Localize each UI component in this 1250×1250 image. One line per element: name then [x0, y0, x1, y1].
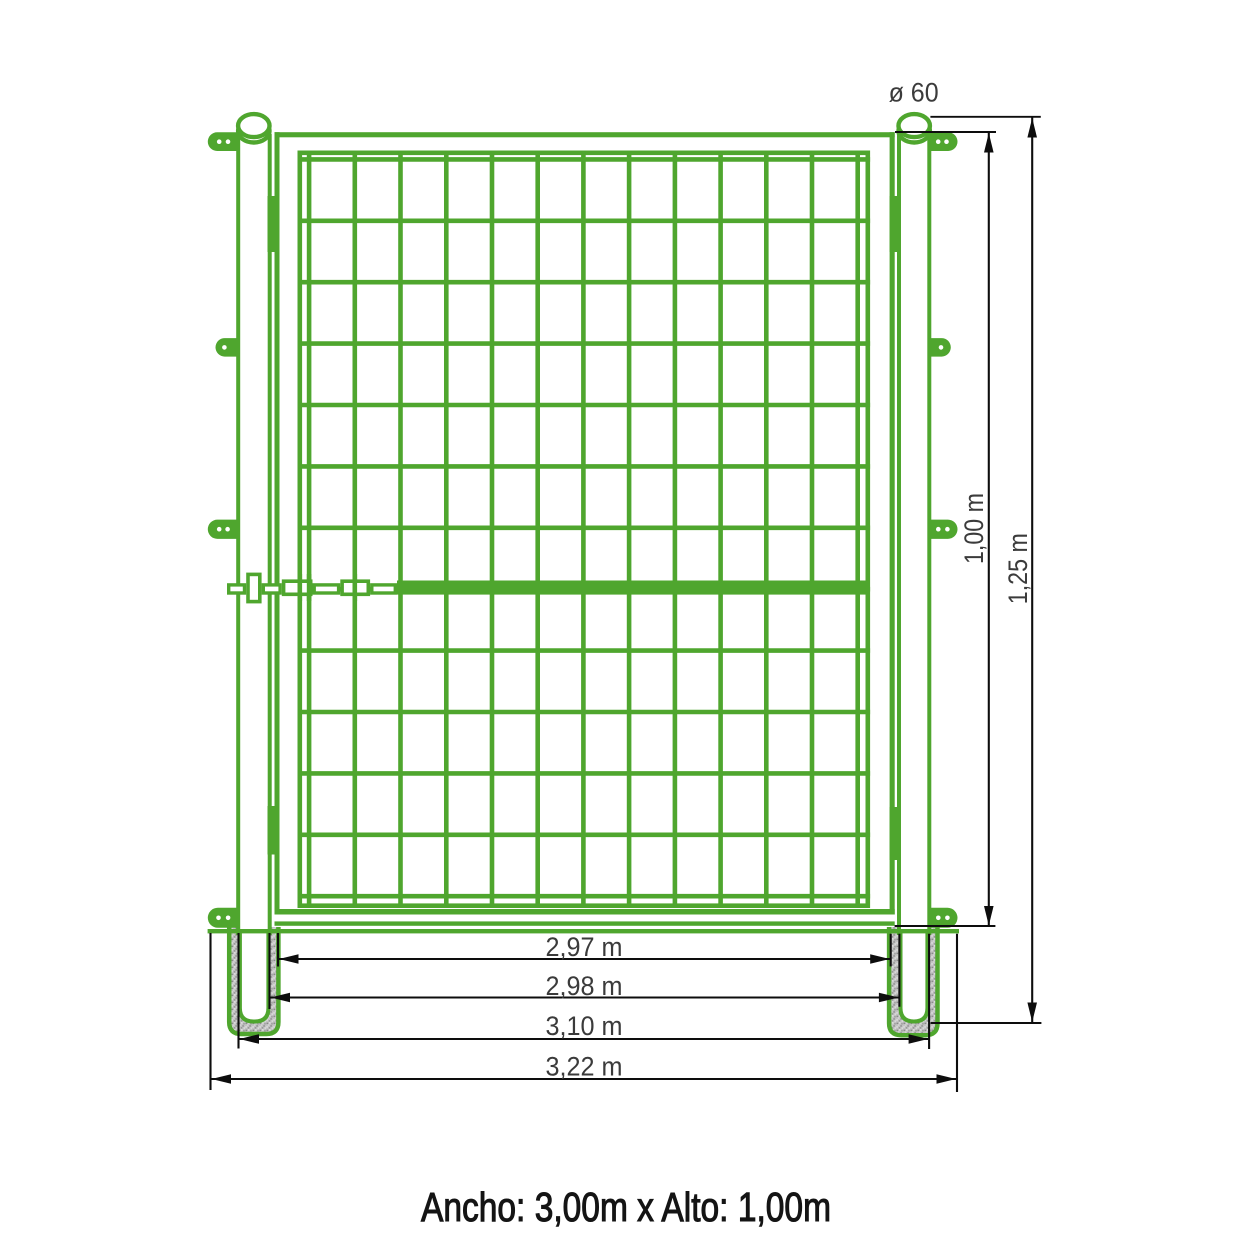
svg-text:3,10 m: 3,10 m — [546, 1011, 623, 1041]
svg-text:1,00 m: 1,00 m — [959, 493, 989, 564]
svg-text:Ancho: 3,00m x Alto: 1,00m: Ancho: 3,00m x Alto: 1,00m — [421, 1184, 831, 1230]
svg-text:3,22 m: 3,22 m — [546, 1052, 623, 1082]
svg-text:ø 60: ø 60 — [889, 78, 939, 108]
svg-text:2,98 m: 2,98 m — [546, 971, 623, 1001]
svg-text:2,97 m: 2,97 m — [546, 932, 623, 962]
svg-text:1,25 m: 1,25 m — [1003, 533, 1033, 604]
